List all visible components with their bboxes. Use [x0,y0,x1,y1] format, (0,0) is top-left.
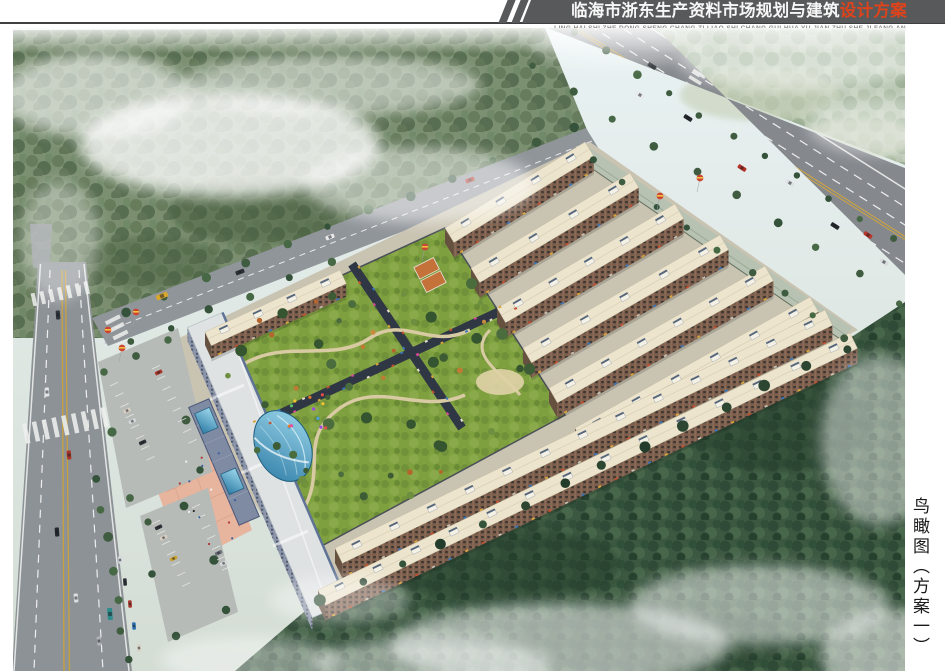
aerial-rendering [13,28,905,671]
presentation-board: 临海市浙东生产资料市场规划与建筑设计方案 LING HAI SHI ZHE DO… [0,0,950,671]
page-title-main: 临海市浙东生产资料市场规划与建筑 [571,2,840,20]
side-caption: 鸟瞰图（方案一） [897,497,941,657]
page-title: 临海市浙东生产资料市场规划与建筑设计方案 [571,0,907,23]
title-band: 临海市浙东生产资料市场规划与建筑设计方案 [522,0,945,23]
top-haze [13,28,905,54]
page-title-accent: 设计方案 [840,2,907,20]
